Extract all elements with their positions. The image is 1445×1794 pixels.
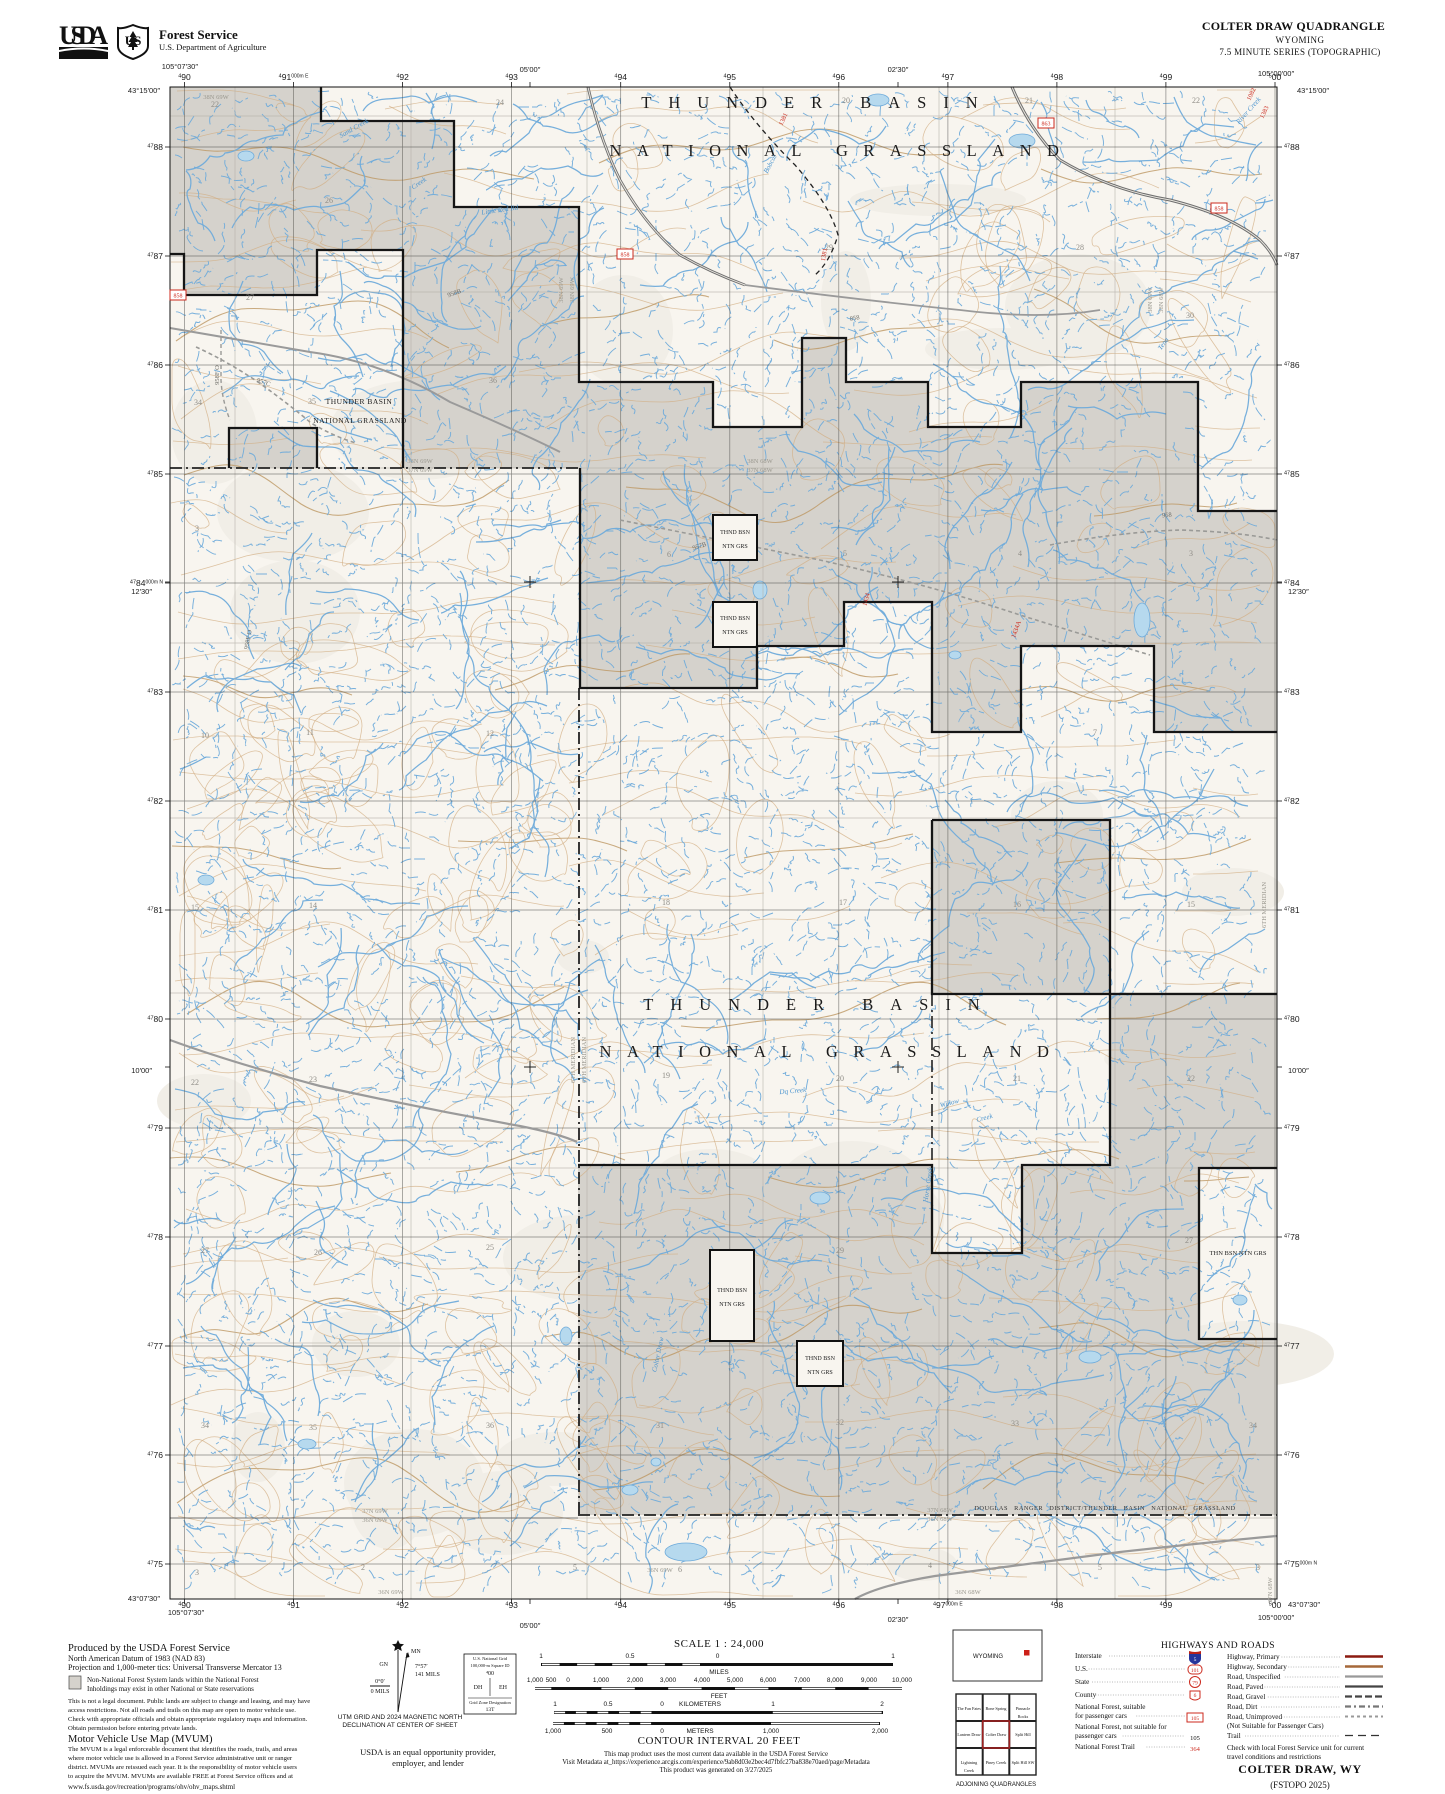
svg-text:6: 6 — [667, 550, 671, 559]
svg-text:NATIONAL GRASSLAND: NATIONAL GRASSLAND — [600, 1042, 1065, 1061]
svg-text:858: 858 — [1215, 207, 1224, 213]
svg-text:11: 11 — [306, 728, 314, 737]
svg-text:364: 364 — [1190, 1746, 1201, 1753]
svg-text:8,000: 8,000 — [827, 1677, 844, 1684]
svg-text:43°07′30″: 43°07′30″ — [128, 1594, 160, 1603]
svg-text:6TH MERIDIAN: 6TH MERIDIAN — [570, 1037, 577, 1083]
svg-text:access restrictions. Not all r: access restrictions. Not all roads and t… — [68, 1707, 296, 1714]
svg-text:U.S. Department of Agriculture: U.S. Department of Agriculture — [159, 42, 267, 52]
svg-text:19: 19 — [662, 1071, 670, 1080]
svg-text:36N 68W: 36N 68W — [927, 1516, 953, 1523]
svg-text:0 MILS: 0 MILS — [371, 1689, 390, 1695]
svg-text:17: 17 — [839, 898, 847, 907]
svg-text:Obtain permission before enter: Obtain permission before entering privat… — [68, 1725, 198, 1732]
svg-text:DECLINATION AT CENTER OF SHEET: DECLINATION AT CENTER OF SHEET — [342, 1722, 457, 1729]
svg-text:4: 4 — [1018, 549, 1022, 558]
svg-text:2: 2 — [361, 1563, 365, 1572]
svg-text:36: 36 — [486, 1421, 494, 1430]
svg-text:958: 958 — [1162, 512, 1172, 520]
svg-text:38N 69W: 38N 69W — [407, 458, 433, 465]
svg-text:27: 27 — [201, 1246, 209, 1255]
svg-text:34: 34 — [1249, 1421, 1257, 1430]
svg-text:858: 858 — [174, 294, 183, 300]
svg-text:36N 69W: 36N 69W — [362, 1517, 388, 1524]
svg-text:National Forest, suitable: National Forest, suitable — [1075, 1703, 1145, 1711]
svg-text:Road, Unimproved: Road, Unimproved — [1227, 1713, 1283, 1721]
svg-text:1,000: 1,000 — [527, 1677, 544, 1684]
svg-text:38N 69W: 38N 69W — [1147, 286, 1154, 312]
svg-text:Lightning: Lightning — [961, 1760, 978, 1765]
svg-text:NTN GRS: NTN GRS — [719, 1302, 745, 1308]
svg-text:FEET: FEET — [711, 1693, 728, 1700]
svg-text:Trail: Trail — [1227, 1732, 1241, 1740]
svg-text:⁴00: ⁴00 — [486, 1671, 494, 1677]
svg-text:THND BSN: THND BSN — [720, 530, 751, 536]
svg-text:24: 24 — [496, 98, 504, 107]
svg-text:0.5: 0.5 — [625, 1653, 634, 1660]
svg-text:36N 69W: 36N 69W — [378, 1589, 404, 1596]
svg-text:36: 36 — [489, 376, 497, 385]
svg-text:0: 0 — [660, 1701, 664, 1708]
svg-text:0.5: 0.5 — [603, 1701, 612, 1708]
svg-text:Motor Vehicle Use Map (MVUM): Motor Vehicle Use Map (MVUM) — [68, 1734, 213, 1745]
svg-text:2: 2 — [880, 1701, 884, 1708]
svg-text:105°07′30″: 105°07′30″ — [168, 1608, 205, 1617]
svg-text:U.S. National Grid: U.S. National Grid — [473, 1656, 508, 1661]
svg-text:This is not a legal document.: This is not a legal document. Public lan… — [68, 1698, 310, 1705]
svg-text:20: 20 — [836, 1074, 844, 1083]
svg-text:EH: EH — [499, 1685, 508, 1691]
svg-text:105°00′00″: 105°00′00″ — [1258, 69, 1295, 78]
svg-text:THND BSN: THND BSN — [720, 616, 751, 622]
svg-text:16: 16 — [1013, 900, 1021, 909]
svg-text:43°15′00″: 43°15′00″ — [1297, 86, 1329, 95]
svg-text:20: 20 — [842, 96, 850, 105]
svg-text:12′30″: 12′30″ — [1288, 587, 1309, 596]
svg-text:26: 26 — [325, 196, 333, 205]
svg-text:10′00″: 10′00″ — [1288, 1066, 1309, 1075]
svg-text:10,000: 10,000 — [892, 1677, 912, 1684]
svg-text:The Fan Fates: The Fan Fates — [957, 1706, 981, 1711]
svg-text:USDA is an equal opportunity p: USDA is an equal opportunity provider, — [360, 1747, 496, 1757]
svg-text:1: 1 — [553, 1701, 557, 1708]
svg-text:43°07′30″: 43°07′30″ — [1288, 1600, 1320, 1609]
svg-text:5: 5 — [1098, 1563, 1102, 1572]
svg-text:31: 31 — [656, 1421, 664, 1430]
svg-text:where motor vehicle use is all: where motor vehicle use is allowed in a … — [68, 1755, 293, 1762]
svg-text:36N 68W: 36N 68W — [955, 1589, 981, 1596]
svg-text:Split Hill SW: Split Hill SW — [1012, 1760, 1035, 1765]
svg-text:6TH MERIDIAN: 6TH MERIDIAN — [1261, 882, 1268, 928]
svg-text:29: 29 — [836, 1246, 844, 1255]
svg-text:105: 105 — [1190, 1735, 1200, 1742]
svg-text:State: State — [1075, 1678, 1089, 1686]
svg-text:NTN GRS: NTN GRS — [722, 544, 748, 550]
svg-text:NTN GRS: NTN GRS — [722, 630, 748, 636]
svg-text:27: 27 — [246, 293, 254, 302]
svg-text:1: 1 — [891, 1653, 895, 1660]
svg-text:(Not Suitable for Passenger Ca: (Not Suitable for Passenger Cars) — [1227, 1722, 1324, 1730]
svg-text:7: 7 — [1093, 728, 1097, 737]
svg-text:(FSTOPO 2025): (FSTOPO 2025) — [1270, 1780, 1330, 1790]
svg-text:passenger cars: passenger cars — [1075, 1732, 1117, 1740]
svg-text:district. MVUMs are reissued e: district. MVUMs are reissued each year. … — [68, 1764, 297, 1771]
svg-text:COLTER DRAW, WY: COLTER DRAW, WY — [1238, 1762, 1362, 1776]
svg-text:2,000: 2,000 — [872, 1728, 889, 1735]
svg-text:0: 0 — [566, 1677, 570, 1684]
svg-text:10: 10 — [201, 731, 209, 740]
svg-text:6: 6 — [678, 1565, 682, 1574]
svg-text:Forest Service: Forest Service — [159, 27, 238, 42]
svg-text:Piney Creek: Piney Creek — [986, 1760, 1007, 1765]
svg-text:DH: DH — [474, 1685, 483, 1691]
svg-text:500: 500 — [546, 1677, 557, 1684]
svg-text:36N 69W: 36N 69W — [647, 1567, 673, 1574]
svg-text:1,000: 1,000 — [545, 1728, 562, 1735]
svg-text:THN BSN NTN GRS: THN BSN NTN GRS — [1210, 1250, 1267, 1257]
svg-text:3: 3 — [1256, 1563, 1260, 1572]
svg-text:COLTER DRAW QUADRANGLE: COLTER DRAW QUADRANGLE — [1202, 19, 1385, 33]
svg-text:Road, Unspecified: Road, Unspecified — [1227, 1673, 1281, 1681]
svg-text:22: 22 — [211, 100, 219, 109]
svg-text:10′00″: 10′00″ — [131, 1066, 152, 1075]
svg-text:SCALE 1 : 24,000: SCALE 1 : 24,000 — [674, 1638, 764, 1650]
svg-text:for passenger cars: for passenger cars — [1075, 1712, 1127, 1720]
svg-text:26: 26 — [314, 1248, 322, 1257]
svg-text:101: 101 — [1191, 1668, 1200, 1674]
svg-text:34: 34 — [201, 1421, 209, 1430]
svg-text:THUNDER BASIN: THUNDER BASIN — [643, 995, 996, 1014]
svg-text:Bone Spring: Bone Spring — [985, 1706, 1007, 1711]
svg-text:15: 15 — [191, 903, 199, 912]
svg-text:21: 21 — [1013, 1074, 1021, 1083]
svg-text:WYOMING: WYOMING — [973, 1654, 1003, 1660]
svg-text:GN: GN — [379, 1662, 388, 1668]
svg-text:Road, Dirt: Road, Dirt — [1227, 1703, 1257, 1711]
svg-text:USDA: USDA — [59, 21, 108, 50]
svg-text:12: 12 — [486, 729, 494, 738]
svg-text:This product was generated on: This product was generated on 3/27/2025 — [660, 1767, 773, 1774]
svg-text:13T: 13T — [486, 1707, 496, 1713]
svg-text:141 MILS: 141 MILS — [415, 1672, 440, 1678]
svg-text:1: 1 — [539, 1653, 543, 1660]
svg-text:METERS: METERS — [686, 1728, 714, 1735]
svg-text:105°00′00″: 105°00′00″ — [1258, 1613, 1295, 1622]
svg-text:NTN GRS: NTN GRS — [807, 1370, 833, 1376]
svg-text:Inholdings may exist in other: Inholdings may exist in other National o… — [87, 1685, 254, 1693]
svg-text:3: 3 — [1189, 549, 1193, 558]
svg-text:37N 69W: 37N 69W — [362, 1508, 388, 1515]
svg-text:7°57′: 7°57′ — [415, 1663, 428, 1670]
svg-text:Non-National Forest System lan: Non-National Forest System lands within … — [87, 1676, 259, 1684]
svg-text:1,000: 1,000 — [593, 1677, 610, 1684]
svg-text:12′30″: 12′30″ — [131, 587, 152, 596]
svg-text:33: 33 — [1011, 1419, 1019, 1428]
svg-text:0: 0 — [660, 1728, 664, 1735]
svg-text:Pinnacle: Pinnacle — [1016, 1706, 1031, 1711]
svg-text:37N 68W: 37N 68W — [1267, 1576, 1274, 1602]
svg-text:ADJOINING QUADRANGLES: ADJOINING QUADRANGLES — [956, 1782, 1036, 1788]
svg-text:County: County — [1075, 1691, 1097, 1699]
svg-text:The MVUM is a legal enforceabl: The MVUM is a legal enforceable document… — [68, 1746, 298, 1753]
svg-text:Road, Paved: Road, Paved — [1227, 1683, 1264, 1691]
svg-text:38N 69W: 38N 69W — [558, 276, 565, 302]
svg-text:863: 863 — [1042, 122, 1051, 128]
svg-text:958F O: 958F O — [214, 365, 221, 385]
svg-text:27: 27 — [1185, 1236, 1193, 1245]
svg-text:to acquire the MVUM. MVUMs are: to acquire the MVUM. MVUMs are available… — [68, 1773, 293, 1780]
svg-text:www.fs.usda.gov/recreation/pro: www.fs.usda.gov/recreation/programs/ohv/… — [68, 1783, 235, 1791]
svg-text:travel conditions and restrict: travel conditions and restrictions — [1227, 1753, 1321, 1761]
svg-text:9,000: 9,000 — [861, 1677, 878, 1684]
svg-text:14: 14 — [309, 901, 317, 910]
svg-text:30: 30 — [1186, 311, 1194, 320]
svg-text:4,000: 4,000 — [694, 1677, 711, 1684]
svg-text:3: 3 — [195, 1568, 199, 1577]
svg-text:National Forest, not suitable: National Forest, not suitable for — [1075, 1723, 1167, 1731]
svg-text:MN: MN — [411, 1649, 421, 1655]
svg-text:22: 22 — [1192, 96, 1200, 105]
svg-text:Split Hill: Split Hill — [1015, 1732, 1031, 1737]
svg-text:THUNDER BASIN: THUNDER BASIN — [326, 397, 393, 406]
svg-text:22: 22 — [191, 1078, 199, 1087]
svg-text:Highway, Secondary: Highway, Secondary — [1227, 1663, 1287, 1671]
svg-text:0: 0 — [716, 1653, 720, 1660]
svg-text:2,000: 2,000 — [627, 1677, 644, 1684]
svg-text:HIGHWAYS AND ROADS: HIGHWAYS AND ROADS — [1161, 1641, 1275, 1651]
svg-text:Road, Gravel: Road, Gravel — [1227, 1693, 1265, 1701]
svg-text:3,000: 3,000 — [660, 1677, 677, 1684]
svg-text:WYOMING: WYOMING — [1276, 35, 1325, 45]
svg-text:5: 5 — [843, 549, 847, 558]
svg-text:Check with appropriate officia: Check with appropriate officials and obt… — [68, 1716, 308, 1723]
svg-text:Projection and 1,000-meter tic: Projection and 1,000-meter tics: Univers… — [68, 1663, 282, 1672]
svg-text:This map product uses the most: This map product uses the most current d… — [604, 1751, 828, 1758]
svg-text:22: 22 — [1187, 1074, 1195, 1083]
svg-text:Rocks: Rocks — [1018, 1714, 1029, 1719]
svg-text:38N 68W: 38N 68W — [1158, 286, 1165, 312]
svg-text:NATIONAL GRASSLAND: NATIONAL GRASSLAND — [610, 141, 1075, 160]
svg-text:35: 35 — [308, 397, 316, 406]
svg-text:4: 4 — [928, 1561, 932, 1570]
svg-text:THUNDER BASIN: THUNDER BASIN — [641, 93, 994, 112]
svg-text:Interstate: Interstate — [1075, 1652, 1102, 1660]
svg-text:6TH MERIDIAN: 6TH MERIDIAN — [581, 1037, 588, 1083]
svg-text:6: 6 — [1194, 1693, 1197, 1699]
svg-text:34: 34 — [194, 398, 202, 407]
svg-text:Colter Draw: Colter Draw — [986, 1732, 1007, 1737]
svg-text:21: 21 — [1025, 96, 1033, 105]
svg-text:Grid Zone Designation: Grid Zone Designation — [469, 1700, 511, 1705]
svg-text:1,000: 1,000 — [763, 1728, 780, 1735]
svg-text:500: 500 — [602, 1728, 613, 1735]
svg-text:18: 18 — [662, 898, 670, 907]
svg-text:3: 3 — [195, 524, 199, 533]
svg-text:7.5 MINUTE SERIES (TOPOGRAPHIC: 7.5 MINUTE SERIES (TOPOGRAPHIC) — [1219, 47, 1380, 57]
svg-text:05′00″: 05′00″ — [520, 65, 541, 74]
svg-text:0°0′: 0°0′ — [375, 1678, 385, 1685]
svg-text:National Forest Trail: National Forest Trail — [1075, 1743, 1135, 1751]
svg-text:79: 79 — [1192, 1681, 1198, 1687]
svg-text:1: 1 — [771, 1701, 775, 1708]
svg-text:32: 32 — [836, 1418, 844, 1427]
svg-text:CONTOUR INTERVAL 20 FEET: CONTOUR INTERVAL 20 FEET — [638, 1735, 801, 1747]
svg-text:Visit Metadata at_https://expe: Visit Metadata at_https://experience.arc… — [562, 1759, 870, 1766]
svg-text:5: 5 — [573, 1563, 577, 1572]
svg-text:UTM GRID AND 2024 MAGNETIC NOR: UTM GRID AND 2024 MAGNETIC NORTH — [338, 1714, 463, 1721]
svg-text:5: 5 — [1194, 1657, 1197, 1663]
svg-text:43°15′00″: 43°15′00″ — [128, 86, 160, 95]
svg-text:Check with local Forest Servic: Check with local Forest Service unit for… — [1227, 1744, 1364, 1752]
svg-text:5,000: 5,000 — [727, 1677, 744, 1684]
svg-text:37N 69W: 37N 69W — [407, 467, 433, 474]
svg-text:38N 69W: 38N 69W — [203, 94, 229, 101]
svg-text:35: 35 — [309, 1423, 317, 1432]
svg-text:38N 69W: 38N 69W — [569, 276, 576, 302]
svg-text:MILES: MILES — [709, 1669, 729, 1676]
svg-text:38N 68W: 38N 68W — [747, 458, 773, 465]
svg-text:858: 858 — [621, 253, 630, 259]
svg-text:23: 23 — [309, 1075, 317, 1084]
svg-text:THND BSN: THND BSN — [805, 1356, 836, 1362]
svg-text:Produced by the USDA Forest Se: Produced by the USDA Forest Service — [68, 1643, 230, 1654]
svg-text:15: 15 — [1187, 900, 1195, 909]
svg-text:28: 28 — [1076, 243, 1084, 252]
svg-text:NATIONAL GRASSLAND: NATIONAL GRASSLAND — [313, 416, 407, 425]
svg-text:105°07′30″: 105°07′30″ — [162, 62, 199, 71]
svg-text:7,000: 7,000 — [794, 1677, 811, 1684]
svg-text:02′30″: 02′30″ — [888, 65, 909, 74]
svg-text:DOUGLAS RANGER DISTRICT/TH: DOUGLAS RANGER DISTRICT/THUNDER BASIN NA… — [974, 1505, 1235, 1512]
svg-text:Highway, Primary: Highway, Primary — [1227, 1653, 1280, 1661]
svg-text:6,000: 6,000 — [760, 1677, 777, 1684]
svg-text:North American Datum of 1983 (: North American Datum of 1983 (NAD 83) — [68, 1654, 205, 1663]
svg-text:05′00″: 05′00″ — [520, 1621, 541, 1630]
svg-text:THND BSN: THND BSN — [717, 1288, 748, 1294]
svg-text:105: 105 — [1191, 1716, 1200, 1722]
svg-text:Lantern Draw: Lantern Draw — [957, 1732, 980, 1737]
svg-text:U.S.: U.S. — [1075, 1665, 1088, 1673]
svg-text:25: 25 — [486, 1243, 494, 1252]
svg-text:Creek: Creek — [964, 1768, 975, 1773]
svg-text:37N 68W: 37N 68W — [927, 1507, 953, 1514]
svg-text:02′30″: 02′30″ — [888, 1615, 909, 1624]
svg-text:KILOMETERS: KILOMETERS — [679, 1701, 722, 1708]
svg-text:37N 68W: 37N 68W — [747, 467, 773, 474]
svg-text:employer, and lender: employer, and lender — [392, 1758, 464, 1768]
